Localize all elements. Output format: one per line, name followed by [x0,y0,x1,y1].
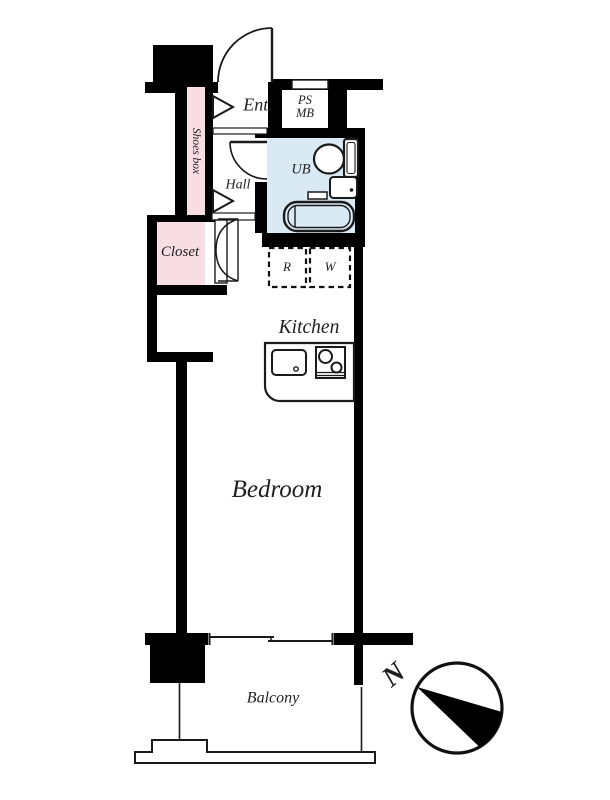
bath-step [308,192,327,199]
wall-ub-bottom [262,233,365,247]
wall-top-left-block [153,45,213,82]
psmb-hatch [292,80,328,89]
compass-rose-icon [412,663,502,753]
balcony-outline [135,683,375,763]
kitchen-sink-icon [272,350,306,375]
shoesbox-door-mark-upper [213,96,233,118]
wall-below-psmb [255,128,365,138]
ent-hall-threshold [213,128,267,134]
wall-bedroom-west [176,352,187,640]
bathtub-icon [284,202,354,231]
refrigerator-space-box [269,248,306,287]
shoes-box-area [187,87,205,215]
stove-icon [316,347,345,378]
closet-area [157,222,205,285]
wall-top-right [338,79,383,90]
floorplan-canvas: Ent. PS MB Shoes box Hall UB Closet R W … [0,0,610,800]
bath-door-icon [230,142,267,179]
wall-east [354,247,363,685]
entrance-door-icon [218,28,272,82]
wall-closet-bottom [147,285,227,295]
wall-ub-left-lower [255,182,267,233]
sliding-window-icon [208,633,334,645]
kitchen-counter [265,343,354,401]
balcony-slab [135,740,375,763]
wall-ent-psmb-divider [268,82,282,130]
shoesbox-door-mark-lower [213,190,233,212]
wall-bottom-left-block [150,635,205,683]
wall-shoesbox-left [175,87,187,215]
floorplan-drawing [0,0,610,800]
washer-space-box [310,248,350,287]
wall-shoesbox-right [205,87,213,222]
washbasin-icon [330,177,357,198]
